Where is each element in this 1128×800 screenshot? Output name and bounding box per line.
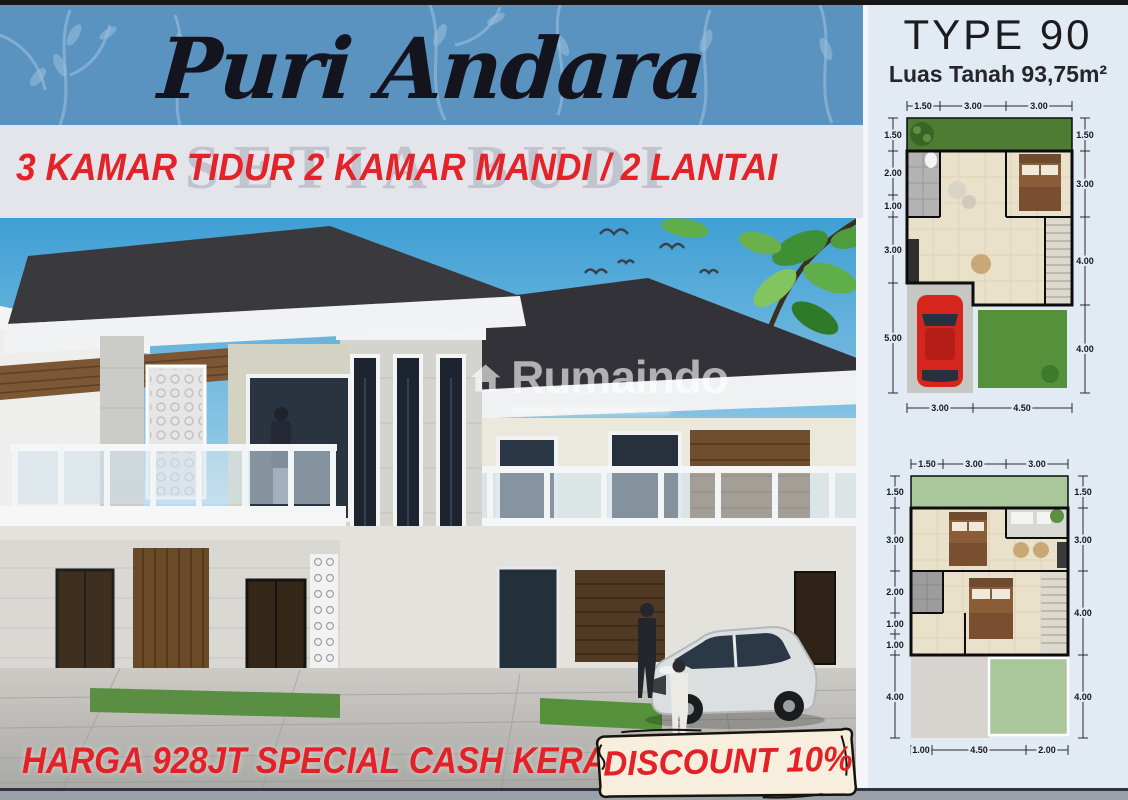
header-band: Puri Andara <box>0 5 863 125</box>
bed-icon <box>949 512 987 566</box>
discount-text: DISCOUNT 10% <box>598 723 858 800</box>
dim-label: 3.00 <box>1074 535 1092 545</box>
balcony-railing-right <box>426 466 862 536</box>
dining-table <box>971 254 991 274</box>
dim-label: 3.00 <box>1030 101 1048 111</box>
shrub-icon <box>1041 365 1059 383</box>
land-area: Luas Tanah 93,75m² <box>868 61 1128 88</box>
top-border <box>0 0 1128 5</box>
dim-label: 4.50 <box>1013 403 1031 413</box>
dim-label: 4.00 <box>1074 608 1092 618</box>
type-title: TYPE 90 <box>868 11 1128 59</box>
balcony-railing-left <box>0 444 346 526</box>
kitchen-counter <box>907 239 919 283</box>
dim-label: 1.00 <box>912 745 930 755</box>
floorplan-second-floor: 1.50 3.00 3.00 1.50 3.00 2.00 1.00 1.00 … <box>869 450 1125 772</box>
dim-label: 3.00 <box>1076 179 1094 189</box>
dim-label: 2.00 <box>1038 745 1056 755</box>
dim-label: 1.00 <box>886 640 904 650</box>
dim-label: 1.50 <box>884 130 902 140</box>
dim-label: 4.00 <box>1076 344 1094 354</box>
dim-label: 3.00 <box>1028 459 1046 469</box>
project-title: Puri Andara <box>0 19 863 119</box>
subtitle-band: SETIA BUDI 3 KAMAR TIDUR 2 KAMAR MANDI /… <box>0 125 863 218</box>
dim-label: 1.50 <box>1076 130 1094 140</box>
brand-watermark: Rumaindo <box>468 352 728 415</box>
brand-tagline-blur <box>511 406 671 415</box>
brand-name: Rumaindo <box>511 352 728 402</box>
dim-label: 3.00 <box>931 403 949 413</box>
house-render <box>0 218 862 795</box>
dim-label: 5.00 <box>884 333 902 343</box>
stairs-2 <box>1041 571 1068 655</box>
plant-icon <box>1050 509 1064 523</box>
bed-icon <box>969 578 1013 639</box>
glass-door-right <box>498 568 558 678</box>
dim-label: 4.50 <box>970 745 988 755</box>
dim-label: 1.50 <box>886 487 904 497</box>
dim-label: 2.00 <box>884 168 902 178</box>
dim-label: 1.50 <box>1074 487 1092 497</box>
dim-label: 1.00 <box>886 619 904 629</box>
balcony-strip <box>911 476 1068 508</box>
dim-label: 2.00 <box>886 587 904 597</box>
spec-subtitle: 3 KAMAR TIDUR 2 KAMAR MANDI / 2 LANTAI <box>16 147 816 190</box>
roof-garden <box>989 658 1068 735</box>
dim-label: 3.00 <box>964 101 982 111</box>
dim-label: 3.00 <box>886 535 904 545</box>
discount-badge: DISCOUNT 10% <box>591 723 865 800</box>
bottom-border <box>0 788 1128 800</box>
stairs-1 <box>1045 217 1072 305</box>
dim-label: 4.00 <box>1076 256 1094 266</box>
dim-label: 3.00 <box>965 459 983 469</box>
dim-label: 4.00 <box>886 692 904 702</box>
dim-label: 1.50 <box>918 459 936 469</box>
bed-icon <box>1019 154 1061 211</box>
terrace <box>911 655 989 738</box>
dim-label: 1.50 <box>914 101 932 111</box>
floorplan-panel: TYPE 90 Luas Tanah 93,75m² <box>868 5 1128 800</box>
house-logo-icon <box>468 352 503 404</box>
dim-label: 1.00 <box>884 201 902 211</box>
floorplan-first-floor: 1.50 3.00 3.00 1.50 2.00 1.00 3.00 5.00 … <box>869 92 1125 437</box>
red-car <box>917 295 963 387</box>
price-text: HARGA 928JT SPECIAL CASH KERAS <box>22 740 629 782</box>
dim-label: 4.00 <box>1074 692 1092 702</box>
tree-icon <box>910 122 934 146</box>
dim-label: 3.00 <box>884 245 902 255</box>
flyer-page: Puri Andara SETIA BUDI 3 KAMAR TIDUR 2 K… <box>0 0 1128 800</box>
